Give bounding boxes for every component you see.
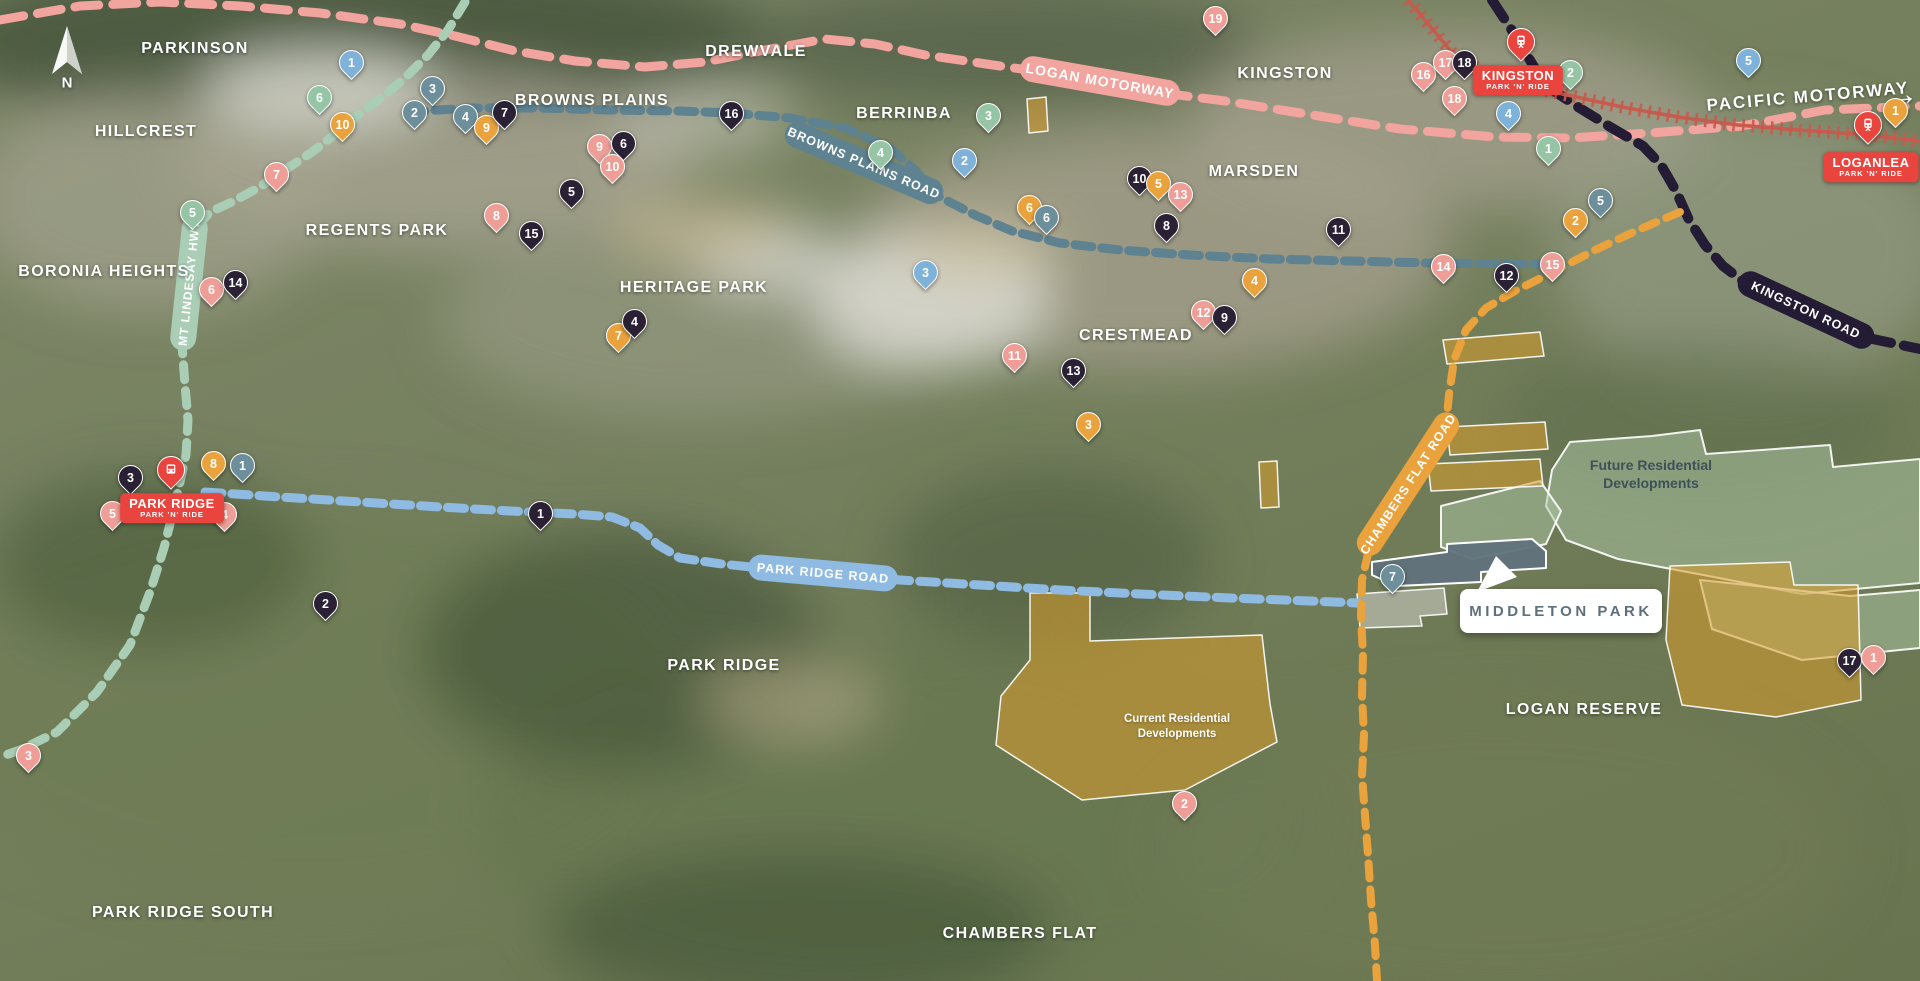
- pin-number: 15: [520, 222, 543, 245]
- suburb-label-logan-reserve: LOGAN RESERVE: [1506, 701, 1663, 719]
- compass-north-label: N: [62, 75, 73, 92]
- pin-number: 4: [623, 310, 646, 333]
- map-pin-steel-5: 5: [1582, 182, 1617, 217]
- map-pin-green-5: 5: [174, 194, 209, 229]
- map-pin-pink-19: 19: [1197, 0, 1232, 35]
- suburb-label-browns-plains: BROWNS PLAINS: [515, 92, 669, 110]
- pin-number: 18: [1443, 87, 1466, 110]
- pin-number: 13: [1169, 183, 1192, 206]
- pin-number: 6: [612, 132, 635, 155]
- map-pin-gold-10: 10: [324, 106, 359, 141]
- suburb-label-park-ridge-south: PARK RIDGE SOUTH: [92, 904, 274, 922]
- pin-number: 11: [1003, 344, 1026, 367]
- pin-number: 3: [1077, 413, 1100, 436]
- map-pin-blue-3: 3: [907, 254, 942, 289]
- pin-number: 2: [1173, 792, 1196, 815]
- pin-number: 17: [1838, 649, 1861, 672]
- area-label-line: Future Residential: [1541, 456, 1761, 474]
- badge-kingston-park-n-ride: KINGSTONPARK 'N' RIDE: [1473, 65, 1563, 95]
- train-icon: [1855, 112, 1881, 138]
- train-icon: [1508, 29, 1534, 55]
- suburb-label-drewvale: DREWVALE: [705, 43, 807, 61]
- map-pin-pink-14: 14: [1425, 248, 1460, 283]
- pin-number: 4: [1497, 102, 1520, 125]
- suburb-label-berrinba: BERRINBA: [856, 105, 952, 123]
- map-pin-dark-12: 12: [1488, 257, 1523, 292]
- pin-number: 5: [1589, 189, 1612, 212]
- pin-number: 3: [421, 77, 444, 100]
- pin-number: 8: [1155, 214, 1178, 237]
- map-pin-dark-16: 16: [713, 95, 748, 130]
- area-label-line: Developments: [1092, 727, 1262, 742]
- pin-number: 1: [529, 502, 552, 525]
- map-pin-dark-8: 8: [1148, 207, 1183, 242]
- pin-number: 5: [1737, 49, 1760, 72]
- pin-number: 8: [485, 204, 508, 227]
- badge-loganlea-park-n-ride: LOGANLEAPARK 'N' RIDE: [1824, 152, 1919, 182]
- park-n-ride-pin-park-ridge: [151, 450, 191, 490]
- map-pin-steel-7: 7: [1374, 558, 1409, 593]
- map-pin-pink-11: 11: [996, 337, 1031, 372]
- pin-number: 6: [308, 86, 331, 109]
- map-pin-blue-1: 1: [333, 44, 368, 79]
- map-pin-gold-4: 4: [1236, 262, 1271, 297]
- badge-title: LOGANLEA: [1833, 156, 1910, 170]
- map-pin-blue-5: 5: [1730, 42, 1765, 77]
- pin-number: 13: [1062, 359, 1085, 382]
- pin-number: 7: [265, 163, 288, 186]
- map-pin-gold-2: 2: [1557, 202, 1592, 237]
- pin-number: 3: [119, 466, 142, 489]
- area-label-line: Developments: [1541, 474, 1761, 492]
- bus-icon: [158, 457, 184, 483]
- map-pin-gold-8: 8: [195, 445, 230, 480]
- pin-number: 10: [601, 155, 624, 178]
- suburb-label-crestmead: CRESTMEAD: [1079, 327, 1193, 345]
- map-pin-gold-3: 3: [1070, 406, 1105, 441]
- suburb-label-boronia-heights: BORONIA HEIGHTS: [18, 263, 190, 281]
- map-pin-dark-5: 5: [553, 173, 588, 208]
- badge-subtitle: PARK 'N' RIDE: [1833, 171, 1910, 179]
- map-pin-green-4: 4: [862, 134, 897, 169]
- satellite-map: LOGAN MOTORWAYBROWNS PLAINS ROADMT LINDE…: [0, 0, 1920, 981]
- badge-title: PARK RIDGE: [129, 497, 215, 511]
- map-pin-pink-3: 3: [10, 737, 45, 772]
- suburb-label-park-ridge: PARK RIDGE: [667, 657, 780, 675]
- pin-number: 5: [1147, 172, 1170, 195]
- pin-number: 6: [1035, 206, 1058, 229]
- map-label-layer: N PACIFIC MOTORWAY → MIDDLETON PARK PARK…: [0, 0, 1920, 981]
- pin-number: 1: [1884, 99, 1907, 122]
- pin-number: 1: [1862, 646, 1885, 669]
- map-pin-blue-2: 2: [946, 142, 981, 177]
- pin-number: 16: [720, 102, 743, 125]
- pin-number: 4: [1243, 269, 1266, 292]
- badge-title: KINGSTON: [1482, 69, 1554, 83]
- suburb-label-hillcrest: HILLCREST: [95, 123, 197, 141]
- pin-number: 6: [200, 278, 223, 301]
- suburb-label-marsden: MARSDEN: [1209, 163, 1300, 181]
- park-n-ride-pin-kingston: [1501, 22, 1541, 62]
- suburb-label-kingston: KINGSTON: [1237, 65, 1332, 83]
- pin-number: 3: [17, 744, 40, 767]
- pin-number: 8: [202, 452, 225, 475]
- suburb-label-regents-park: REGENTS PARK: [306, 222, 449, 240]
- pin-number: 3: [914, 261, 937, 284]
- pin-number: 7: [1381, 565, 1404, 588]
- pin-number: 2: [314, 592, 337, 615]
- map-pin-dark-11: 11: [1320, 211, 1355, 246]
- area-label-line: Current Residential: [1092, 712, 1262, 727]
- pin-number: 5: [560, 180, 583, 203]
- pin-number: 2: [953, 149, 976, 172]
- pin-number: 4: [869, 141, 892, 164]
- pin-number: 12: [1495, 264, 1518, 287]
- map-pin-dark-3: 3: [112, 459, 147, 494]
- pin-number: 1: [1537, 137, 1560, 160]
- badge-subtitle: PARK 'N' RIDE: [1482, 84, 1554, 92]
- pin-number: 16: [1412, 63, 1435, 86]
- pin-number: 1: [231, 454, 254, 477]
- map-pin-pink-15: 15: [1534, 246, 1569, 281]
- pin-number: 11: [1327, 218, 1350, 241]
- suburb-label-chambers-flat: CHAMBERS FLAT: [943, 925, 1098, 943]
- pin-number: 1: [340, 51, 363, 74]
- map-pin-green-1: 1: [1530, 130, 1565, 165]
- suburb-label-heritage-park: HERITAGE PARK: [620, 279, 768, 297]
- pin-number: 7: [493, 101, 516, 124]
- suburb-label-parkinson: PARKINSON: [141, 40, 248, 58]
- pin-number: 3: [977, 104, 1000, 127]
- badge-subtitle: PARK 'N' RIDE: [129, 512, 215, 520]
- map-pin-dark-1: 1: [522, 495, 557, 530]
- map-pin-blue-4: 4: [1490, 95, 1525, 130]
- map-pin-green-3: 3: [970, 97, 1005, 132]
- area-label-current-residential-developments: Current ResidentialDevelopments: [1092, 712, 1262, 742]
- area-label-future-residential-developments: Future ResidentialDevelopments: [1541, 456, 1761, 492]
- map-pin-pink-18: 18: [1436, 80, 1471, 115]
- badge-park-ridge-park-n-ride: PARK RIDGEPARK 'N' RIDE: [120, 493, 224, 523]
- pin-number: 15: [1541, 253, 1564, 276]
- pin-number: 5: [181, 201, 204, 224]
- map-pin-dark-15: 15: [513, 215, 548, 250]
- pin-number: 19: [1204, 7, 1227, 30]
- pin-number: 2: [1564, 209, 1587, 232]
- pin-number: 14: [224, 271, 247, 294]
- pin-number: 2: [403, 101, 426, 124]
- map-pin-pink-2: 2: [1166, 785, 1201, 820]
- pin-number: 9: [1213, 306, 1236, 329]
- map-pin-pink-8: 8: [478, 197, 513, 232]
- map-pin-pink-7: 7: [258, 156, 293, 191]
- map-pin-steel-1: 1: [224, 447, 259, 482]
- pacific-motorway-label: PACIFIC MOTORWAY: [1706, 78, 1910, 116]
- map-pin-dark-2: 2: [307, 585, 342, 620]
- map-pin-green-6: 6: [301, 79, 336, 114]
- map-pin-dark-13: 13: [1055, 352, 1090, 387]
- middleton-park-callout: MIDDLETON PARK: [1460, 589, 1662, 633]
- pin-number: 14: [1432, 255, 1455, 278]
- middleton-park-callout-label: MIDDLETON PARK: [1469, 603, 1652, 620]
- pin-number: 10: [331, 113, 354, 136]
